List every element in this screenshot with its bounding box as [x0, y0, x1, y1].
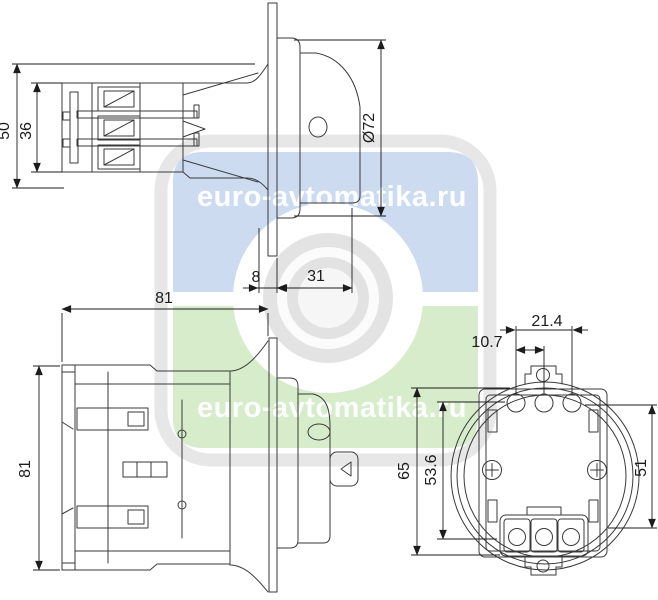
dim-rear-overall-height: 65: [396, 462, 413, 480]
screw-left: [483, 461, 502, 480]
mounting-flange-plate: [269, 338, 277, 592]
terminal-connector-block: [500, 507, 588, 556]
screw-right: [588, 461, 607, 480]
lamp-hole-center: [535, 394, 553, 412]
body-outline: [62, 341, 268, 592]
indicator-lamp-circle: [308, 424, 330, 440]
latch-tab: [330, 452, 358, 486]
dimension-drawing: 50 36 8 31 Ø72: [0, 0, 658, 600]
dim-front-depth: 31: [307, 268, 325, 285]
dim-hole-pitch-outer: 21.4: [531, 313, 562, 330]
top-view-drawing: 81 81: [17, 290, 358, 592]
bezel-profile: [277, 378, 358, 548]
dim-height: 81: [17, 460, 34, 478]
side-view-drawing: 50 36 8 31 Ø72: [0, 3, 386, 293]
mounting-hole-top: [537, 369, 550, 382]
dim-overall-height: 50: [0, 122, 13, 140]
technical-drawing-canvas: euro-avtomatika.ru euro-avtomatika.ru: [0, 0, 658, 600]
rear-body: [451, 366, 639, 575]
arrow-marker-icon: [341, 462, 351, 476]
bezel-profile: [277, 38, 360, 218]
lamp-hole-right: [563, 394, 581, 412]
mounting-flange-plate: [268, 3, 277, 256]
terminal-block: [62, 83, 205, 172]
dim-terminal-height: 36: [18, 122, 35, 140]
adapter-funnel: [183, 64, 268, 190]
terminal-strip: [77, 111, 197, 118]
rear-view-drawing: 21.4 10.7 65 53.6 51: [396, 313, 657, 575]
dim-width: 81: [155, 290, 173, 307]
dim-flange-diameter: Ø72: [361, 113, 378, 143]
dim-rear-body-height: 53.6: [423, 454, 440, 485]
dim-hole-pitch-inner: 10.7: [471, 334, 502, 351]
dim-rear-side-height: 51: [633, 459, 650, 477]
dim-panel-gap: 8: [252, 269, 261, 286]
indicator-lamp-circle: [309, 117, 327, 137]
